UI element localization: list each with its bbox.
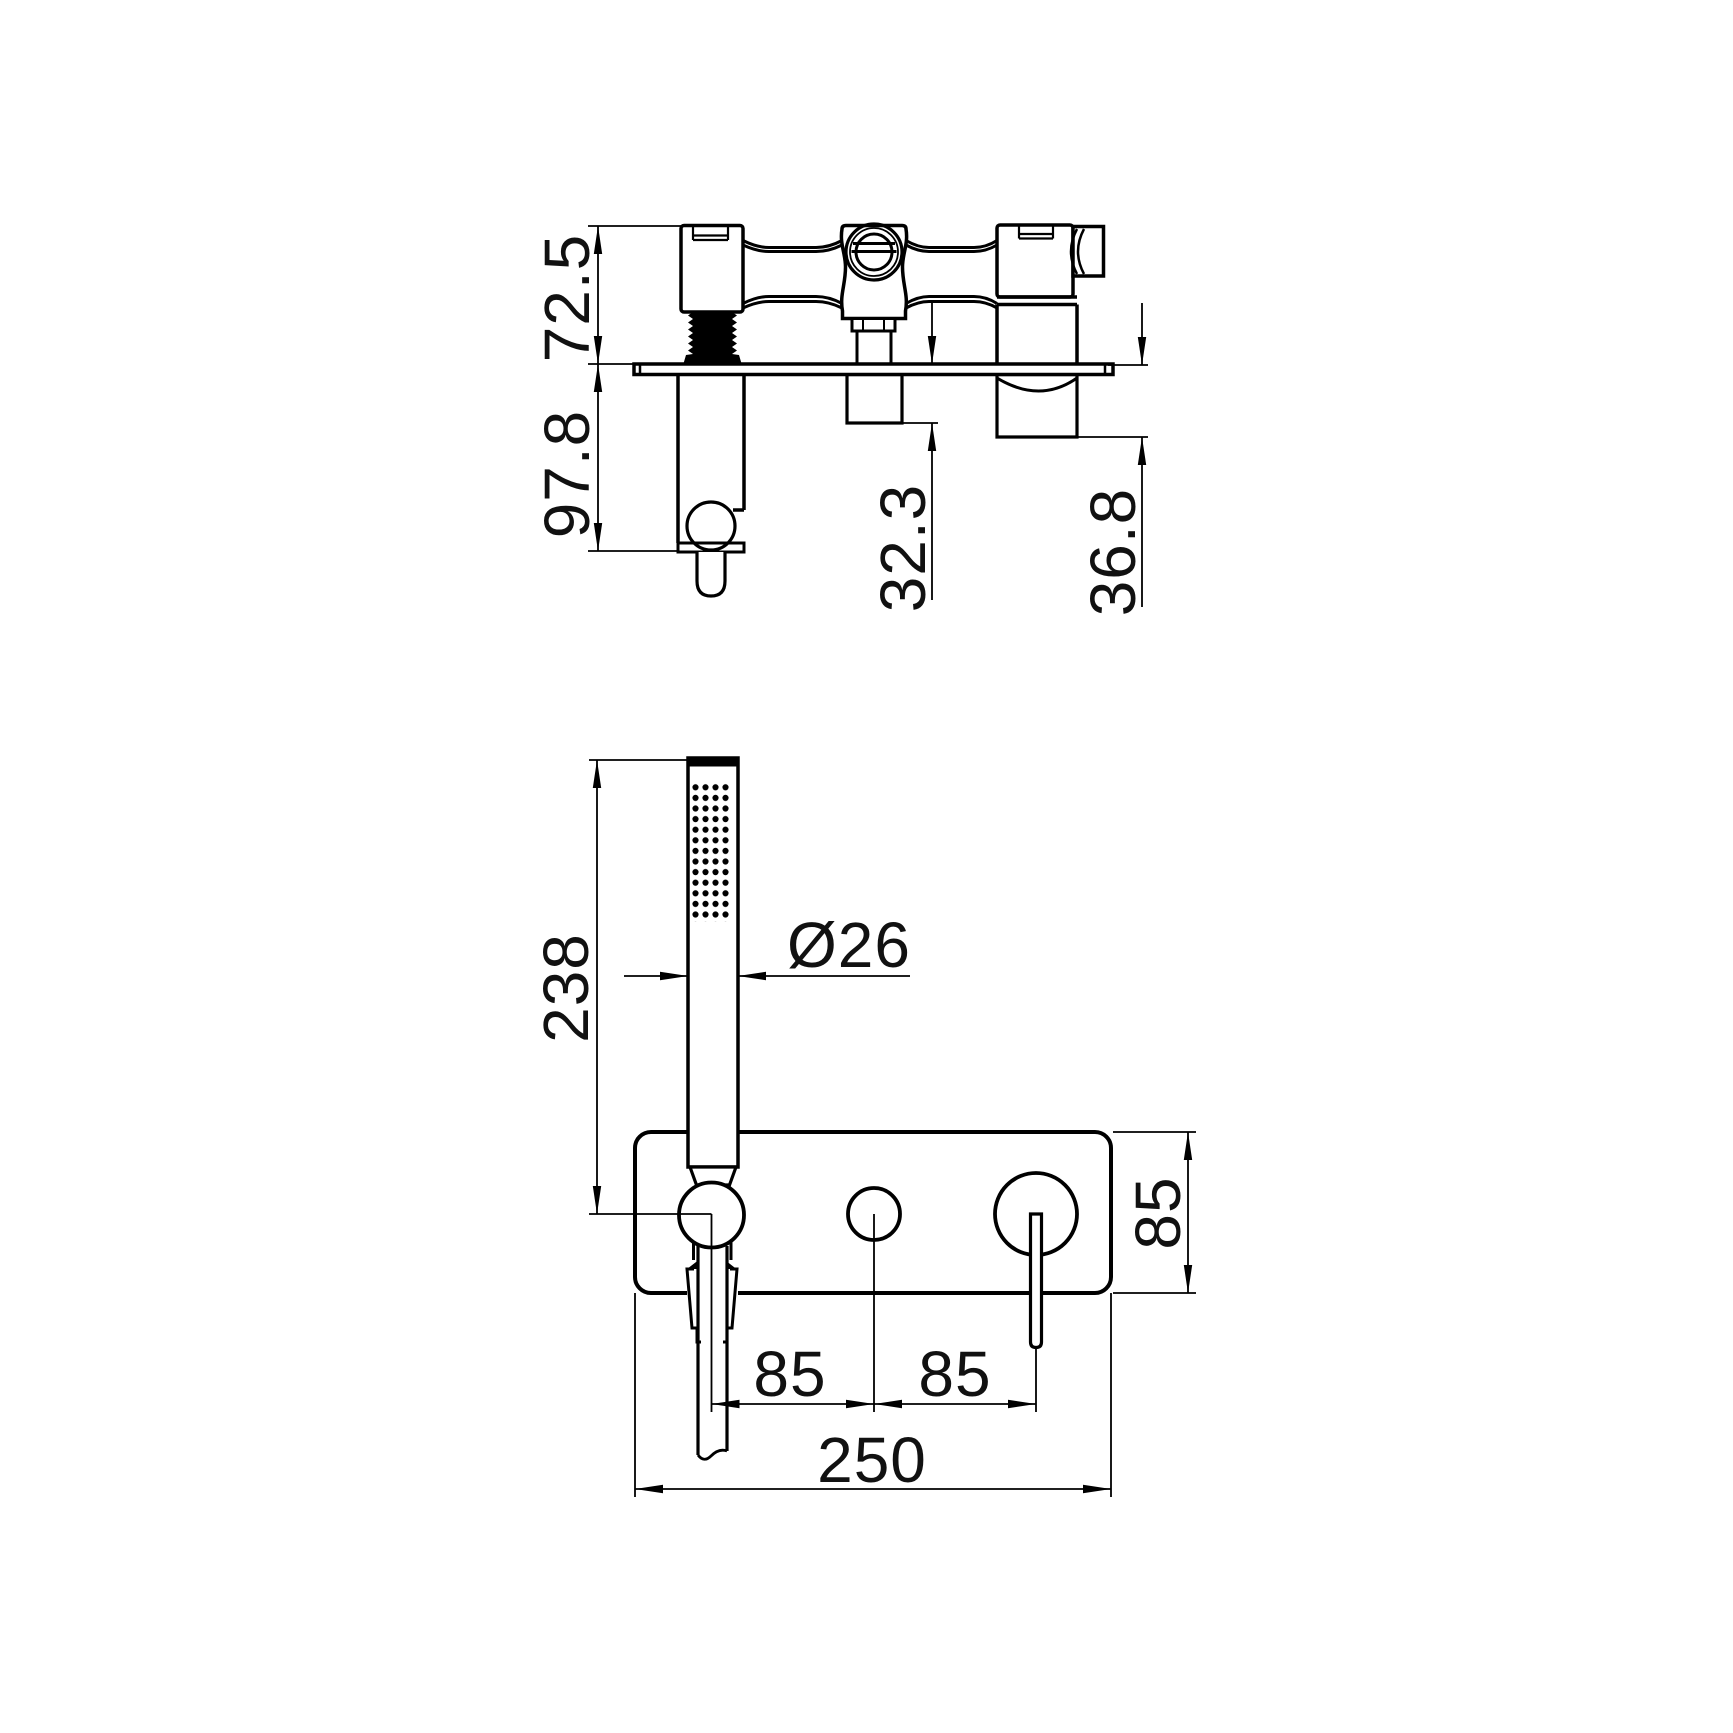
threaded-stem (684, 312, 742, 364)
lever-arm-front (1031, 1214, 1042, 1348)
dim-36-8-label: 36.8 (1077, 488, 1149, 617)
dim-d26-label: Ø26 (787, 909, 911, 981)
dim-72-5-label: 72.5 (531, 234, 603, 363)
dim-85-left-label: 85 (753, 1338, 826, 1410)
spray-face-dots (691, 782, 732, 922)
handle-end-side (697, 552, 725, 596)
dim-97-8-label: 97.8 (531, 410, 603, 539)
technical-drawing: 72.5 97.8 32.3 36.8 (0, 0, 1733, 1733)
spout-outlet-side (847, 375, 902, 424)
dim-238-label: 238 (530, 933, 602, 1043)
handshower-holder-side (681, 226, 743, 364)
handshower-cap (688, 757, 738, 767)
dim-85-right-label: 85 (918, 1338, 991, 1410)
wall-plate-side (634, 364, 1113, 375)
diverter-stem (857, 331, 891, 365)
dim-85-height-label: 85 (1122, 1176, 1194, 1249)
dim-250-label: 250 (817, 1424, 927, 1496)
diverter-nut (852, 319, 895, 332)
dim-32-3-label: 32.3 (867, 484, 939, 613)
drawing-canvas: 72.5 97.8 32.3 36.8 (0, 0, 1733, 1733)
